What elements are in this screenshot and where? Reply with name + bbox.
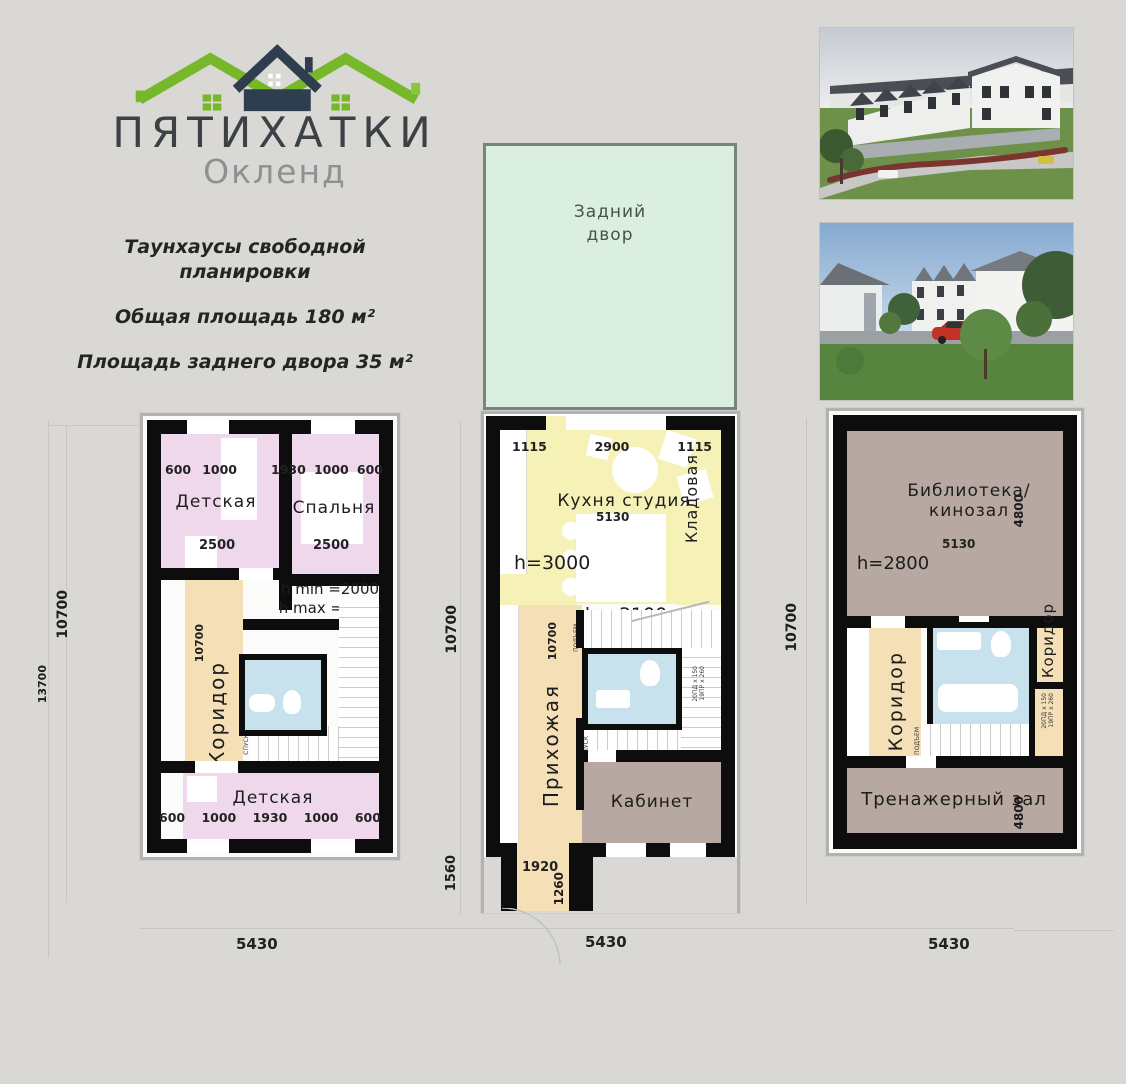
plan3-library-width: 5130 (942, 537, 975, 551)
room-pantry-label: Кладовая (682, 454, 701, 543)
exterior-photo-aerial (819, 27, 1074, 200)
room-hall-label: Прихожая (539, 684, 563, 807)
plan3-stair-spec-1: 20ПД x 150 (1041, 693, 1048, 729)
plan3-stair-spec-2: 19ПР x 260 (1048, 693, 1055, 728)
brand-subtitle: Окленд (95, 152, 455, 191)
brand-title: ПЯТИХАТКИ (95, 108, 455, 157)
bathroom-2 (582, 648, 682, 730)
plan3-dim-left: 10700 (784, 603, 800, 652)
plan3-library-height-note: h=2800 (853, 553, 933, 574)
room-kitchen-label: Кухня студия (544, 491, 704, 511)
room-corridor-left-label: Коридор (885, 651, 907, 751)
plan2-kitchen-height-note: h=3000 (514, 552, 590, 574)
plan3-dim-bottom: 5430 (928, 935, 970, 953)
brand-logo-roofs-icon (128, 40, 424, 118)
yard-label-line2: двор (486, 224, 734, 247)
plan3-gym-depth: 4800 (1012, 796, 1026, 829)
floor-plan-1: 600 1000 Детская 2500 1930 1000 600 Спал… (140, 413, 400, 860)
plan2-porch-depth: 1260 (552, 872, 566, 905)
bathroom-3 (927, 622, 1041, 732)
plan1-bottom-dims: 600 1000 1930 1000 600 (159, 810, 381, 825)
plan2-stair-spec-1: 20ПД x 150 (692, 666, 699, 702)
porch-door-arc (500, 908, 564, 968)
room-library (847, 431, 1063, 616)
room-bedroom-label: Спальня (288, 498, 380, 518)
room-child-bottom-label: Детская (203, 788, 343, 808)
corridor-label: Коридор (205, 661, 229, 766)
plan1-dim-left-outer: 13700 (36, 665, 49, 703)
plan3-stair-up-label: ПОДЪЕМ (914, 727, 921, 755)
plan2-top-dims: 1115 2900 1115 (512, 439, 712, 454)
room-office-label: Кабинет (590, 792, 714, 812)
plan1-dim-left-inner: 10700 (55, 590, 71, 639)
plan1-dim-bottom: 5430 (236, 935, 278, 953)
back-yard: Задний двор (483, 143, 737, 410)
summary-line-2: планировки (65, 261, 425, 283)
plan1-topright-width: 2500 (313, 538, 349, 553)
plan2-stair-spec-2: 19ПР x 260 (699, 666, 706, 701)
summary-line-1: Таунхаусы свободной (65, 236, 425, 258)
floor-plan-3: Библиотека/ кинозал 4800 5130 h=2800 Кор… (826, 408, 1084, 856)
room-child-top-label: Детская (161, 492, 271, 512)
plan1-topleft-width: 2500 (199, 538, 235, 553)
plan1-topleft-dims: 600 1000 (165, 462, 237, 477)
summary-total-area: Общая площадь 180 м² (45, 306, 445, 328)
plan1-corridor-dim: 10700 (193, 624, 206, 662)
plan2-kitchen-width: 5130 (596, 510, 629, 524)
flyer-page: ПЯТИХАТКИ Окленд Таунхаусы свободной пла… (0, 0, 1126, 1084)
plan1-topright-dims: 1930 1000 600 (271, 462, 383, 477)
plan1-height-note-1: h min =2000 (277, 580, 383, 598)
plan1-stair-down-label: СПУСК (243, 734, 250, 755)
plan2-dim-bottom: 5430 (585, 933, 627, 951)
plan2-hall-dim: 10700 (546, 622, 559, 660)
plan2-dim-left-main: 10700 (444, 605, 460, 654)
bathroom (239, 654, 327, 736)
summary-yard-area: Площадь заднего двора 35 м² (35, 351, 455, 373)
yard-label-line1: Задний (486, 201, 734, 224)
room-corridor-right-label: Коридор (1039, 603, 1057, 678)
exterior-photo-street (819, 222, 1074, 401)
floor-plan-2: 1115 2900 1115 Кухня студия 5130 Кладова… (481, 411, 740, 913)
plan3-library-depth: 4800 (1012, 494, 1026, 527)
plan2-dim-left-porch: 1560 (444, 855, 459, 891)
